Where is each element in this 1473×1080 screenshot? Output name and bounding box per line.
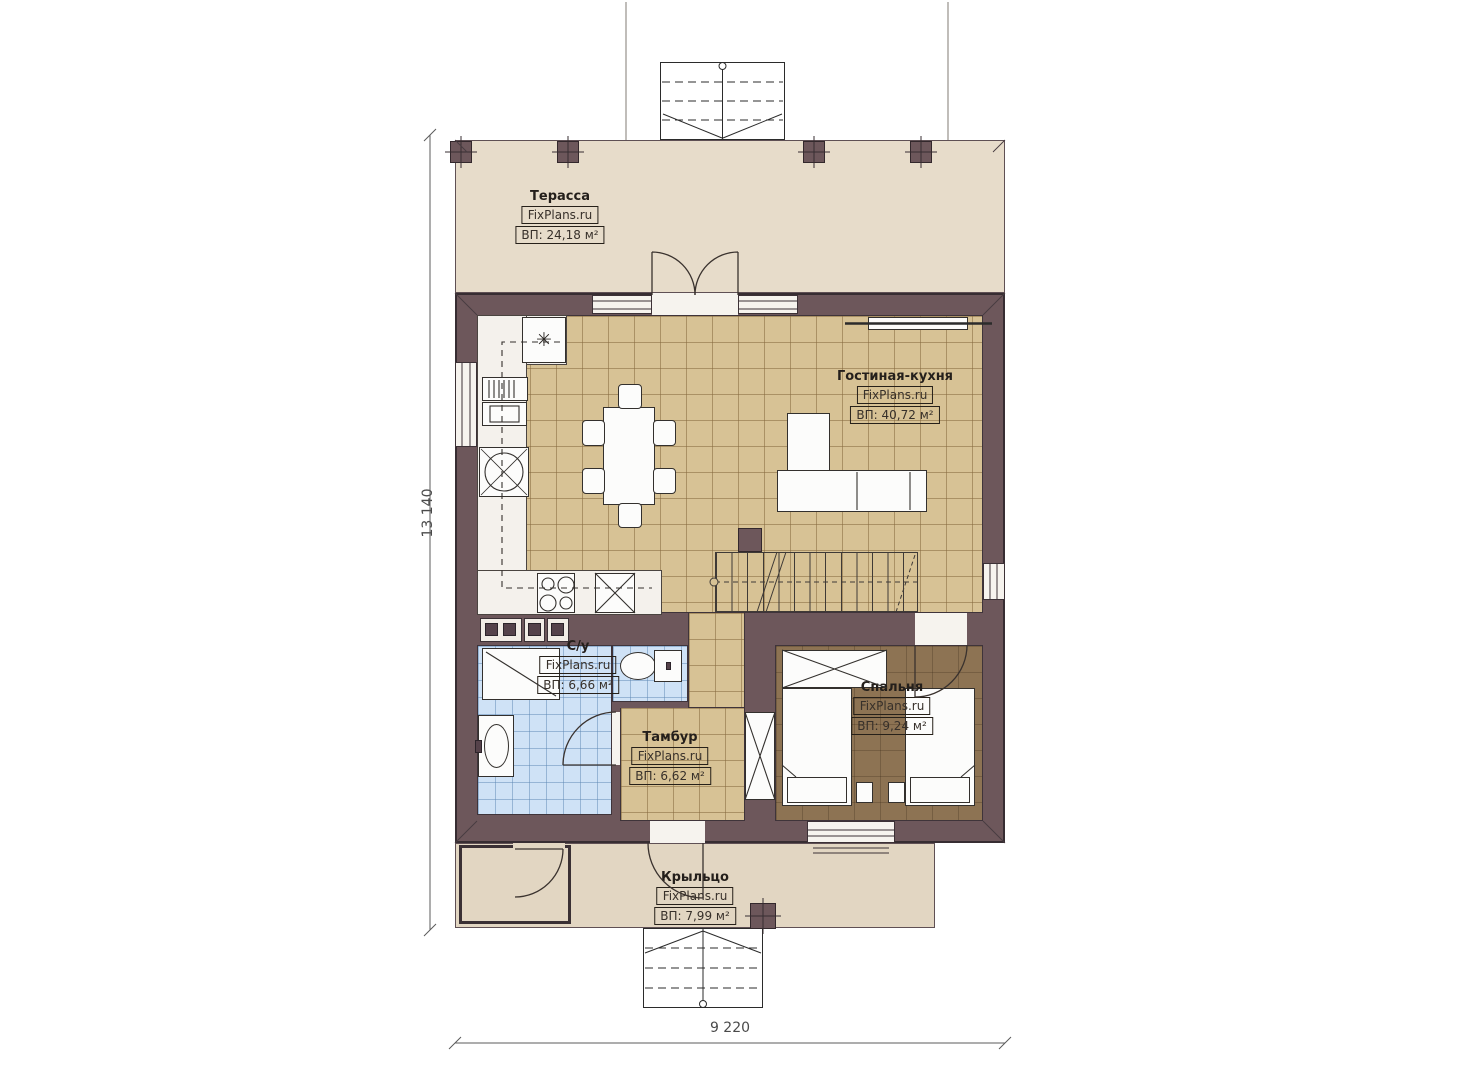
window-top-left (592, 295, 652, 314)
terrace-column (557, 141, 579, 163)
dishwasher (482, 377, 528, 401)
chair (653, 420, 676, 446)
bathroom-door-opening (612, 712, 620, 765)
room-area-box: ВП: 9,24 м² (851, 717, 933, 735)
chair (653, 468, 676, 494)
toilet-bowl (620, 652, 656, 680)
nightstand (856, 782, 873, 803)
bedroom-door-opening (915, 613, 967, 645)
room-label-living-kitchen: Гостиная-кухня FixPlans.ru ВП: 40,72 м² (837, 370, 953, 424)
room-name: Тамбур (642, 731, 697, 745)
window-left-wall (455, 362, 477, 447)
kitchen-sink (479, 447, 529, 497)
stair-post (738, 528, 762, 552)
stove (537, 573, 575, 613)
terrace-door-opening (652, 293, 738, 315)
window-right-wall (983, 563, 1005, 600)
room-name: С/у (567, 640, 590, 654)
room-area-box: ВП: 40,72 м² (850, 406, 939, 424)
washbasin-tap (475, 740, 482, 753)
room-label-bathroom: С/у FixPlans.ru ВП: 6,66 м² (537, 640, 619, 694)
porch-column (750, 903, 776, 929)
room-area-box: ВП: 6,66 м² (537, 676, 619, 694)
vent-shaft (551, 623, 564, 636)
watermark-box: FixPlans.ru (540, 656, 617, 674)
tv (868, 317, 968, 330)
room-label-bedroom: Спальня FixPlans.ru ВП: 9,24 м² (851, 681, 933, 735)
window-bedroom (807, 821, 895, 843)
room-name: Крыльцо (661, 871, 729, 885)
floor-plan-canvas: ✳ Терасса FixPlans.ru ВП: 24,18 м² (0, 0, 1473, 1080)
dimension-width-label: 9 220 (690, 1020, 770, 1036)
chair (618, 503, 642, 528)
room-area-box: ВП: 7,99 м² (654, 907, 736, 925)
chair (618, 384, 642, 409)
dimension-height-label: 13 140 (420, 473, 436, 553)
room-name: Спальня (861, 681, 923, 695)
room-label-porch: Крыльцо FixPlans.ru ВП: 7,99 м² (654, 871, 736, 925)
room-area-box: ВП: 24,18 м² (515, 226, 604, 244)
terrace-column (910, 141, 932, 163)
vent-shaft (485, 623, 498, 636)
room-label-vestibule: Тамбур FixPlans.ru ВП: 6,62 м² (629, 731, 711, 785)
watermark-box: FixPlans.ru (857, 386, 934, 404)
sofa-seat (777, 470, 927, 512)
toilet-flush-button (666, 662, 671, 670)
bed-pillow (787, 777, 847, 803)
chair (582, 468, 605, 494)
oven (482, 402, 527, 426)
fridge-snowflake-glyph: ✳ (536, 329, 552, 351)
room-name: Терасса (530, 190, 590, 204)
room-label-terrace: Терасса FixPlans.ru ВП: 24,18 м² (515, 190, 604, 244)
vent-shaft (503, 623, 516, 636)
washbasin-bowl (484, 724, 509, 768)
terrace-column (803, 141, 825, 163)
under-counter-appliance (595, 573, 635, 613)
room-name: Гостиная-кухня (837, 370, 953, 384)
vent-shaft (528, 623, 541, 636)
watermark-box: FixPlans.ru (657, 887, 734, 905)
passage-floor (688, 613, 745, 708)
fridge-icon: ✳ (522, 317, 566, 363)
terrace-column (450, 141, 472, 163)
room-area-box: ВП: 6,62 м² (629, 767, 711, 785)
staircase (715, 552, 918, 612)
chair (582, 420, 605, 446)
dining-table (603, 407, 655, 505)
watermark-box: FixPlans.ru (522, 206, 599, 224)
porch-storage-room (459, 845, 571, 924)
window-top-right (738, 295, 798, 314)
front-door-opening (650, 821, 705, 843)
entry-steps-bottom (643, 928, 763, 1008)
watermark-box: FixPlans.ru (632, 747, 709, 765)
nightstand (888, 782, 905, 803)
watermark-box: FixPlans.ru (854, 697, 931, 715)
porch-room-door-opening (513, 842, 565, 851)
wardrobe-partition (745, 712, 775, 800)
bed-pillow (910, 777, 970, 803)
entry-steps-top (660, 62, 785, 140)
